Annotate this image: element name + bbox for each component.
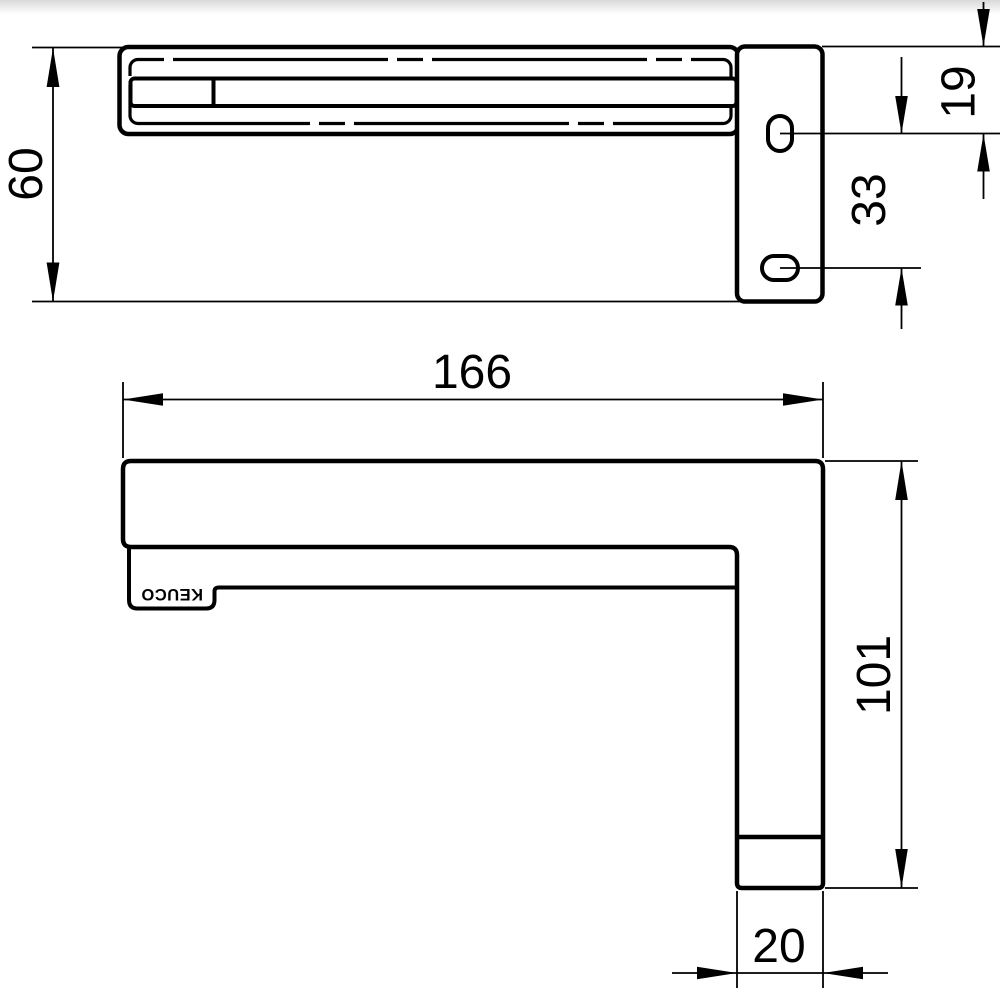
dimension-length: 166 <box>123 346 823 406</box>
arrowhead-down <box>47 263 60 302</box>
product-side-profile <box>123 461 823 888</box>
page-top-shadow <box>0 0 1000 14</box>
arrowhead-up <box>895 461 908 500</box>
end-cap-and-cover-profile <box>129 547 737 609</box>
top-view: 60 19 33 <box>0 2 1000 329</box>
arrowhead-right <box>783 393 823 406</box>
technical-drawing-canvas: 60 19 33 KEUCO <box>0 0 1000 992</box>
brand-logo-text: KEUCO <box>141 585 203 603</box>
arrowhead-left <box>123 393 163 406</box>
arrowhead-up <box>977 134 990 172</box>
dimension-height: 101 <box>848 461 908 888</box>
dimension-label-height: 101 <box>848 635 901 715</box>
arrowhead-up <box>47 48 60 87</box>
side-view: KEUCO 166 101 20 <box>123 346 918 988</box>
dimension-depth: 60 <box>0 48 59 302</box>
arrowhead-left <box>823 967 863 980</box>
dimension-label-leg-width: 20 <box>752 920 805 973</box>
arrowhead-up <box>895 268 908 306</box>
dimension-leg-width: 20 <box>672 920 888 979</box>
dimension-hole-spacing: 33 <box>843 57 908 329</box>
dimension-label-hole-offset: 19 <box>933 65 986 118</box>
arrowhead-right <box>697 967 737 980</box>
arrowhead-down <box>977 9 990 47</box>
dimension-label-length: 166 <box>432 346 512 399</box>
dimension-label-depth: 60 <box>0 147 53 200</box>
technical-drawing-page: 60 19 33 KEUCO <box>0 0 1000 992</box>
arrowhead-down <box>895 849 908 888</box>
arrowhead-down <box>895 96 908 134</box>
dimension-label-hole-spacing: 33 <box>843 173 896 226</box>
dimension-hole-offset: 19 <box>933 2 990 199</box>
roller-rod <box>131 79 737 107</box>
